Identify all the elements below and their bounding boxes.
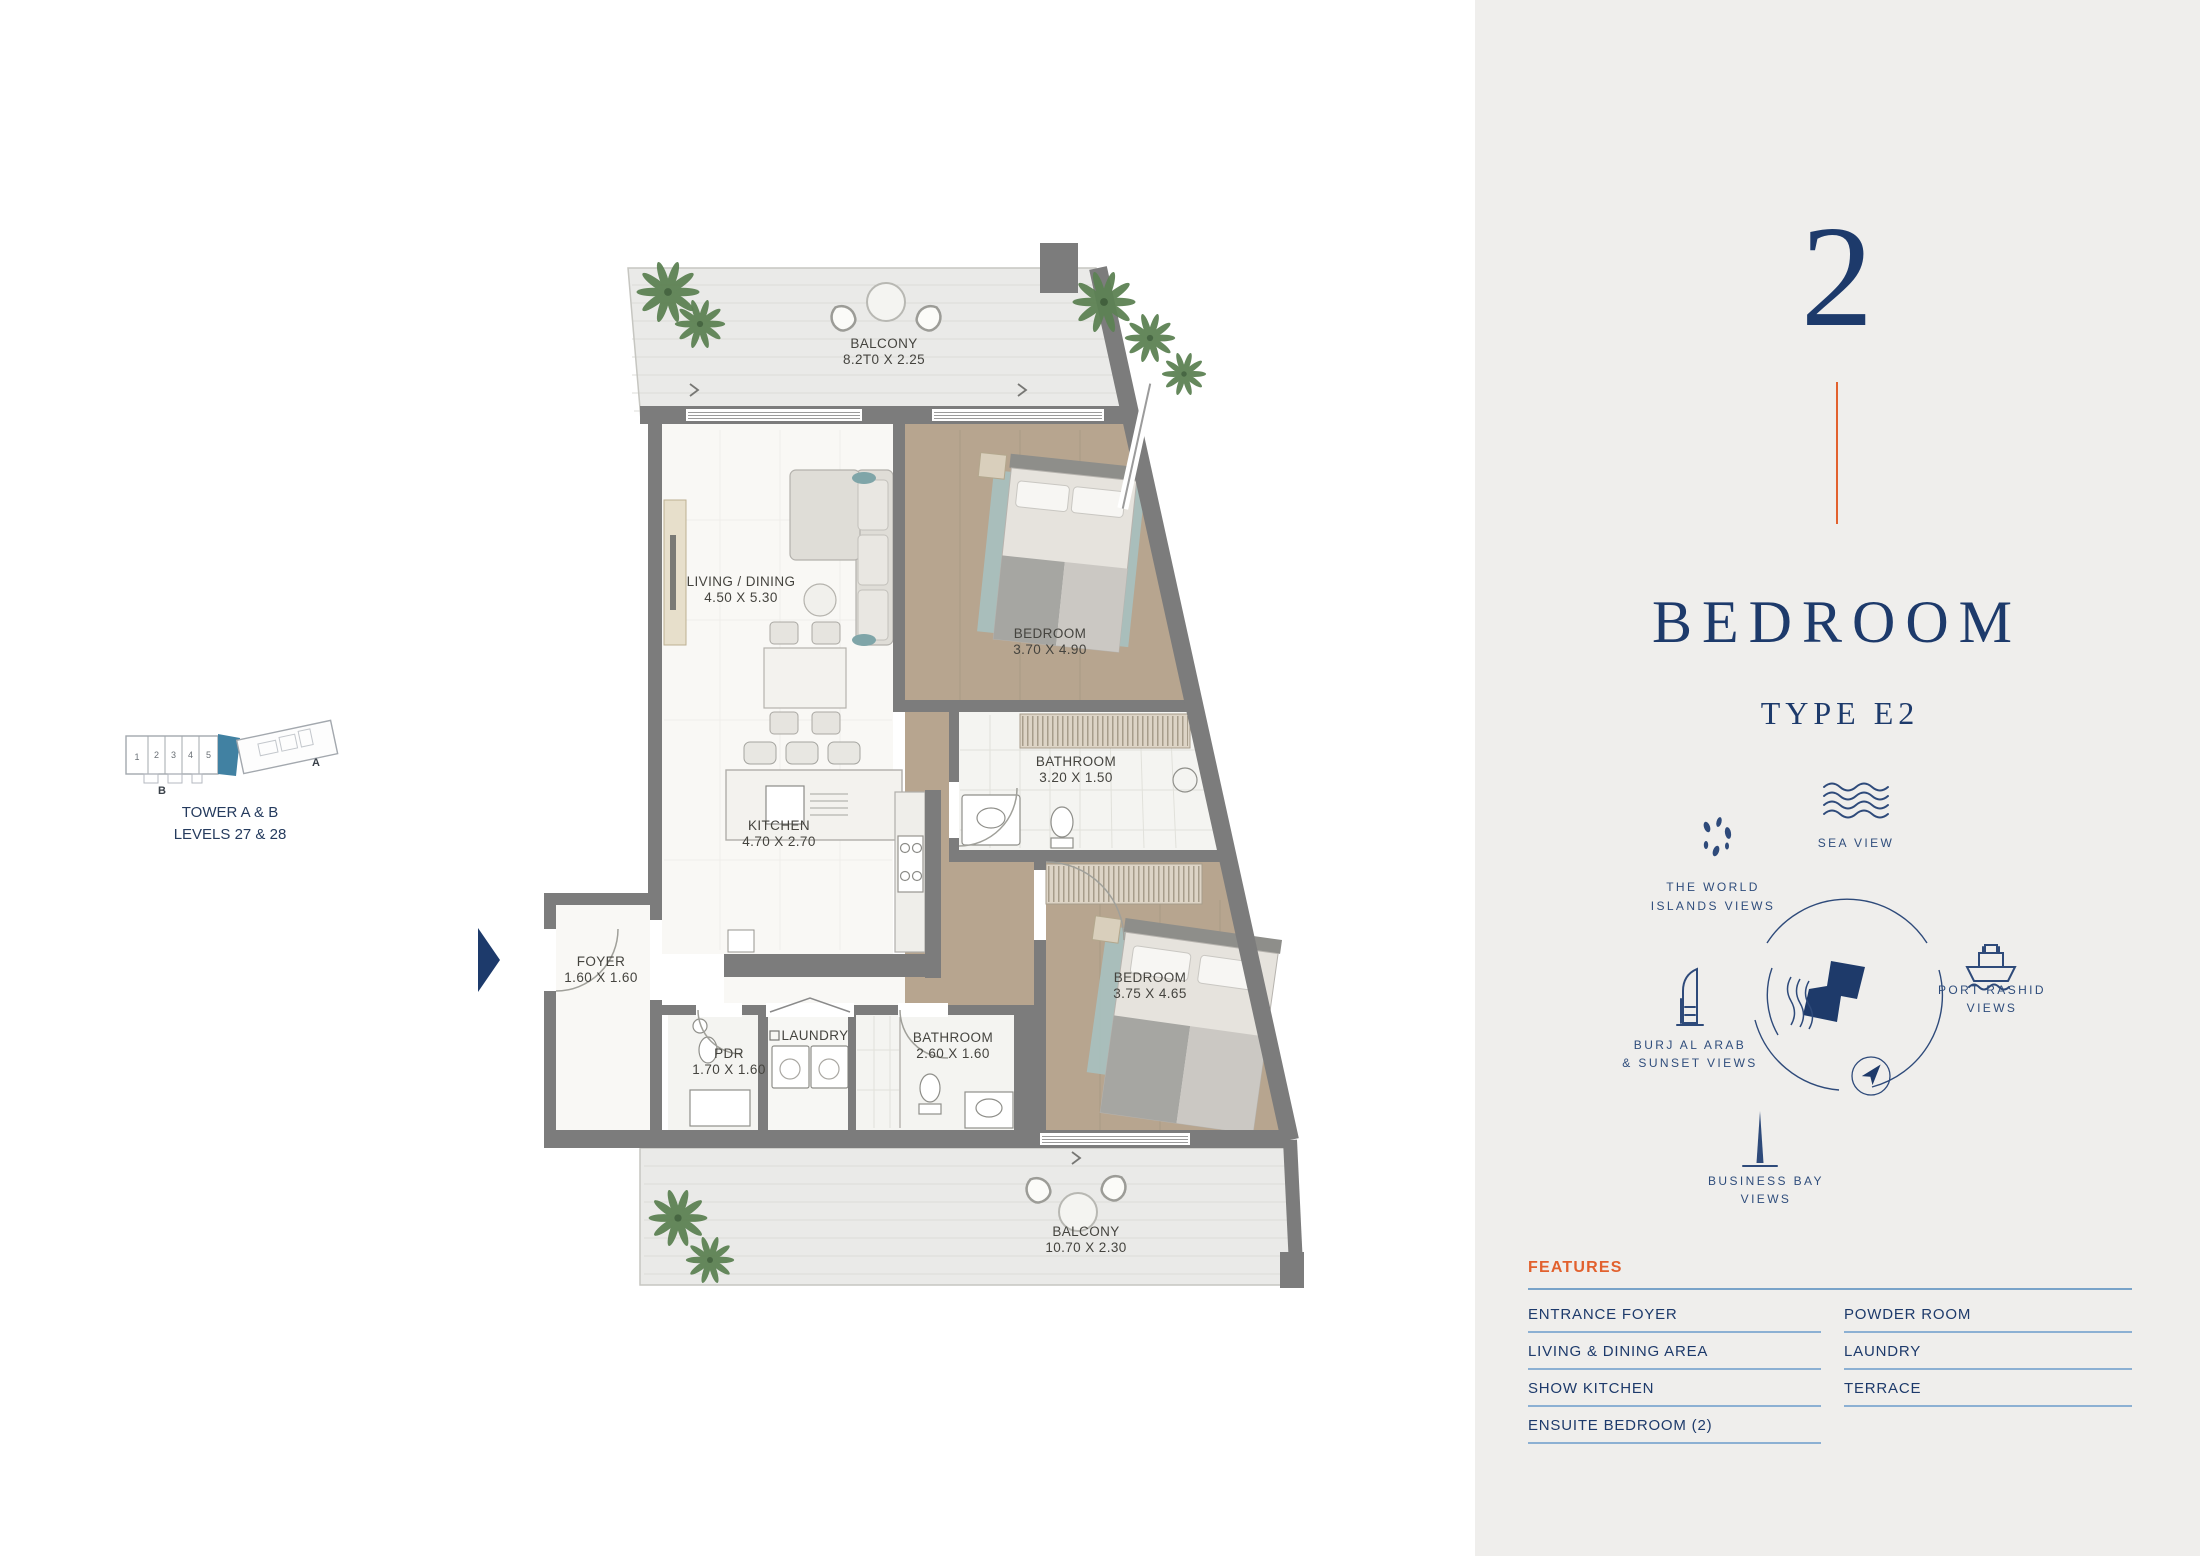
- keymap-title-line1: TOWER A & B: [110, 804, 350, 821]
- port-views-label-2: VIEWS: [1967, 1001, 2018, 1015]
- keymap-unit-1: 1: [134, 752, 139, 762]
- feature-item: SHOW KITCHEN: [1528, 1381, 1821, 1407]
- burj-views-label-1: BURJ AL ARAB: [1634, 1038, 1746, 1052]
- feature-item: LAUNDRY: [1844, 1344, 2132, 1370]
- burj-al-arab-icon: [1677, 969, 1703, 1025]
- brochure-page: 1 2 3 4 5 B A TOWER A & B LEVELS 27 & 28: [0, 0, 2200, 1556]
- balcony-bottom-dims: 10.70 X 2.30: [1045, 1240, 1126, 1255]
- keymap-wing-a-label: A: [312, 757, 320, 769]
- bathroom1-label: BATHROOM: [1036, 754, 1116, 769]
- page-title: BEDROOM: [1652, 588, 2022, 657]
- kitchen-label: KITCHEN: [748, 818, 810, 833]
- bay-views-label-1: BUSINESS BAY: [1708, 1174, 1824, 1188]
- feature-item: ENSUITE BEDROOM (2): [1528, 1418, 1821, 1444]
- port-views-label-1: PORT RASHID: [1938, 983, 2046, 997]
- world-views-label-2: ISLANDS VIEWS: [1651, 899, 1776, 913]
- bedroom1-dims: 3.70 X 4.90: [1013, 642, 1086, 657]
- world-views-label-1: THE WORLD: [1666, 880, 1760, 894]
- world-islands-icon: [1702, 817, 1732, 858]
- business-bay-icon: [1743, 1111, 1777, 1166]
- unit-type-number: 2: [1801, 205, 1874, 350]
- feature-item: LIVING & DINING AREA: [1528, 1344, 1821, 1370]
- feature-item: TERRACE: [1844, 1381, 2132, 1407]
- keymap-wing-b-label: B: [158, 785, 166, 797]
- keymap-title-line2: LEVELS 27 & 28: [110, 826, 350, 843]
- features-heading: FEATURES: [1528, 1259, 2132, 1277]
- keymap-unit-4: 4: [188, 750, 193, 760]
- bathroom1-dims: 3.20 X 1.50: [1039, 770, 1112, 785]
- bedroom1-label: BEDROOM: [1014, 626, 1087, 641]
- sea-waves-icon: [1824, 784, 1888, 818]
- laundry-label: LAUNDRY: [781, 1028, 848, 1043]
- bathroom2-label: BATHROOM: [913, 1030, 993, 1045]
- feature-item: POWDER ROOM: [1844, 1307, 2132, 1333]
- balcony-top-dims: 8.2T0 X 2.25: [843, 352, 925, 367]
- living-label: LIVING / DINING: [687, 574, 796, 589]
- features-rule: [1528, 1288, 2132, 1290]
- features-column-left: ENTRANCE FOYER LIVING & DINING AREA SHOW…: [1528, 1307, 1821, 1455]
- burj-views-label-2: & SUNSET VIEWS: [1622, 1056, 1757, 1070]
- bathroom2-dims: 2.60 X 1.60: [916, 1046, 989, 1061]
- balcony-top-label: BALCONY: [850, 336, 917, 351]
- keymap-wing-a-outline: [237, 720, 338, 773]
- bay-views-label-2: VIEWS: [1741, 1192, 1792, 1206]
- balcony-bottom-floor: [640, 1148, 1297, 1285]
- features-column-right: POWDER ROOM LAUNDRY TERRACE: [1844, 1307, 2132, 1455]
- balcony-bottom-label: BALCONY: [1052, 1224, 1119, 1239]
- north-compass-icon: [1852, 1057, 1890, 1095]
- floor-plan: BALCONY 8.2T0 X 2.25 LIVING / DINING 4.5…: [440, 230, 1320, 1305]
- water-squiggles: [1788, 977, 1813, 1029]
- key-map-drawing: 1 2 3 4 5 B A: [110, 700, 350, 800]
- foyer-label: FOYER: [577, 954, 626, 969]
- foyer-dims: 1.60 X 1.60: [564, 970, 637, 985]
- bedroom2-dims: 3.75 X 4.65: [1113, 986, 1186, 1001]
- accent-divider: [1836, 382, 1838, 524]
- pdr-label: PDR: [714, 1046, 744, 1061]
- living-dims: 4.50 X 5.30: [704, 590, 777, 605]
- bedroom2-label: BEDROOM: [1114, 970, 1187, 985]
- page-subtitle: TYPE E2: [1761, 695, 1920, 732]
- keymap-unit-3: 3: [171, 750, 176, 760]
- kitchen-dims: 4.70 X 2.70: [742, 834, 815, 849]
- keymap-unit-2: 2: [154, 750, 159, 760]
- features-section: FEATURES ENTRANCE FOYER LIVING & DINING …: [1528, 1259, 2132, 1455]
- feature-item: ENTRANCE FOYER: [1528, 1307, 1821, 1333]
- keymap-unit-5: 5: [206, 750, 211, 760]
- sea-view-label: SEA VIEW: [1818, 836, 1895, 850]
- pdr-dims: 1.70 X 1.60: [692, 1062, 765, 1077]
- entrance-arrow: [478, 928, 500, 992]
- tower-key-map: 1 2 3 4 5 B A TOWER A & B LEVELS 27 & 28: [110, 700, 350, 850]
